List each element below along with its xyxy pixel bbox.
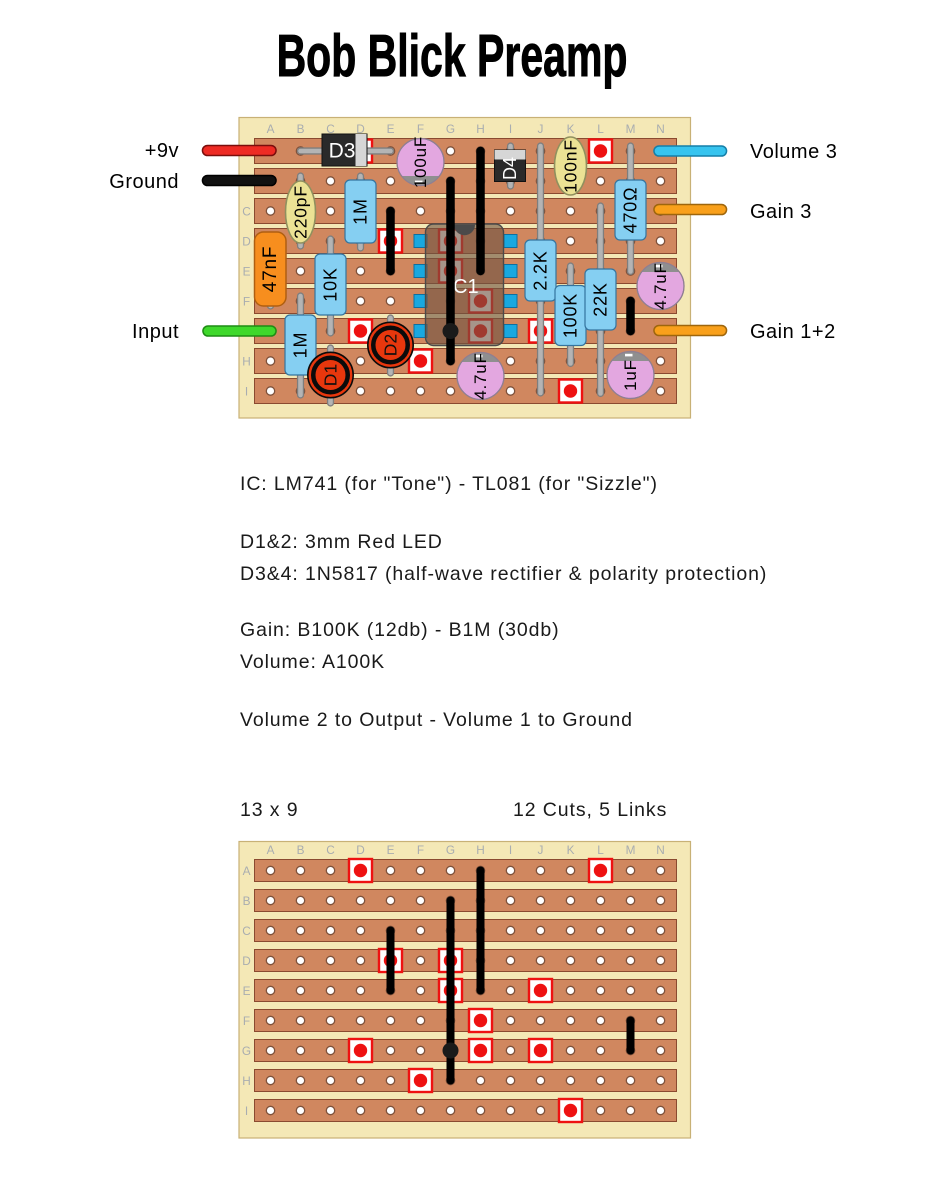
svg-text:J: J: [538, 122, 544, 136]
svg-text:22K: 22K: [591, 282, 611, 316]
svg-text:Volume 3: Volume 3: [750, 141, 837, 163]
svg-text:E: E: [387, 843, 395, 857]
svg-text:D3&4: 1N5817 (half-wave rectif: D3&4: 1N5817 (half-wave rectifier & pola…: [240, 563, 767, 585]
svg-text:L: L: [597, 843, 604, 857]
svg-text:Ground: Ground: [109, 171, 179, 193]
svg-text:IC: LM741 (for "Tone") - TL081: IC: LM741 (for "Tone") - TL081 (for "Siz…: [240, 473, 658, 495]
svg-text:D1&2: 3mm Red LED: D1&2: 3mm Red LED: [240, 531, 443, 553]
svg-text:4.7uF: 4.7uF: [651, 262, 670, 309]
svg-text:M: M: [626, 843, 636, 857]
svg-text:B: B: [243, 894, 251, 908]
svg-text:12 Cuts, 5 Links: 12 Cuts, 5 Links: [513, 799, 667, 821]
svg-text:I: I: [245, 385, 248, 399]
svg-text:H: H: [242, 1074, 251, 1088]
svg-text:A: A: [267, 843, 275, 857]
svg-text:2.2K: 2.2K: [531, 250, 551, 290]
svg-text:H: H: [476, 843, 485, 857]
svg-text:G: G: [242, 1044, 251, 1058]
svg-text:L: L: [597, 122, 604, 136]
svg-text:B: B: [297, 122, 305, 136]
svg-text:N: N: [656, 122, 665, 136]
svg-text:D3: D3: [329, 140, 356, 163]
svg-text:F: F: [417, 843, 424, 857]
svg-text:N: N: [656, 843, 665, 857]
svg-text:D1: D1: [321, 364, 341, 386]
svg-text:100K: 100K: [561, 293, 581, 338]
svg-text:47nF: 47nF: [260, 246, 281, 293]
svg-text:A: A: [267, 122, 275, 136]
svg-text:220pF: 220pF: [291, 185, 311, 239]
svg-text:K: K: [567, 122, 575, 136]
svg-text:Gain: B100K (12db) - B1M (30db: Gain: B100K (12db) - B1M (30db): [240, 619, 559, 641]
svg-text:H: H: [476, 122, 485, 136]
svg-text:H: H: [242, 355, 251, 369]
svg-text:+9v: +9v: [145, 140, 179, 162]
svg-text:A: A: [243, 864, 251, 878]
svg-text:G: G: [446, 122, 455, 136]
svg-text:E: E: [243, 984, 251, 998]
svg-text:C: C: [242, 205, 251, 219]
svg-text:I: I: [509, 122, 512, 136]
svg-text:470Ω: 470Ω: [621, 187, 641, 234]
svg-text:I: I: [245, 1104, 248, 1118]
svg-text:J: J: [538, 843, 544, 857]
svg-text:1uF: 1uF: [621, 359, 640, 391]
svg-text:F: F: [417, 122, 424, 136]
svg-text:D: D: [356, 843, 365, 857]
svg-text:Volume 2 to Output - Volume 1: Volume 2 to Output - Volume 1 to Ground: [240, 709, 633, 731]
svg-text:F: F: [243, 295, 250, 309]
svg-text:10K: 10K: [321, 267, 341, 301]
svg-text:Volume: A100K: Volume: A100K: [240, 651, 385, 673]
svg-text:1M: 1M: [351, 198, 371, 225]
svg-text:G: G: [446, 843, 455, 857]
svg-text:Gain 1+2: Gain 1+2: [750, 321, 836, 343]
svg-text:Bob Blick Preamp: Bob Blick Preamp: [277, 23, 628, 89]
svg-text:D: D: [242, 235, 251, 249]
svg-text:F: F: [243, 1014, 250, 1028]
svg-text:I: I: [509, 843, 512, 857]
svg-text:E: E: [243, 265, 251, 279]
svg-text:Gain 3: Gain 3: [750, 201, 812, 223]
svg-text:4.7uF: 4.7uF: [471, 352, 490, 399]
svg-text:C: C: [326, 843, 335, 857]
svg-text:D: D: [242, 954, 251, 968]
svg-text:100uF: 100uF: [411, 136, 430, 188]
svg-text:13 x 9: 13 x 9: [240, 799, 299, 821]
svg-text:B: B: [297, 843, 305, 857]
svg-text:D4: D4: [500, 157, 520, 180]
svg-text:C: C: [242, 924, 251, 938]
svg-text:Input: Input: [132, 321, 179, 343]
svg-text:1M: 1M: [291, 332, 311, 359]
svg-text:E: E: [387, 122, 395, 136]
svg-text:100nF: 100nF: [561, 139, 581, 193]
svg-text:M: M: [626, 122, 636, 136]
svg-text:K: K: [567, 843, 575, 857]
svg-text:D2: D2: [381, 334, 401, 356]
